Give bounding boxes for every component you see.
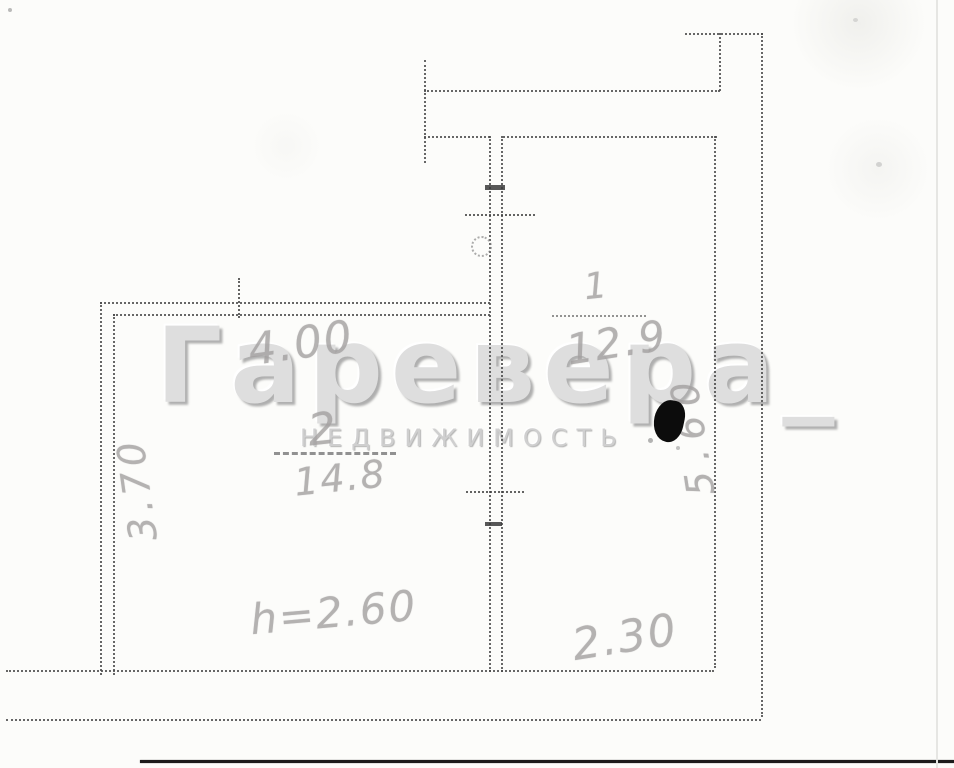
dimension-room2-depth: 3.70: [109, 444, 166, 544]
door-jamb-mark-lower: [485, 522, 502, 526]
wall-outer-right: [761, 33, 763, 717]
tick-partition-lower: [466, 491, 524, 493]
floorplan-scan: Гаревера_ НЕДВИЖИМОСТЬ 4.00 3.70 2 14.8 …: [0, 0, 954, 768]
wall-shaft-left: [719, 33, 721, 91]
page-right-edge: [936, 0, 938, 768]
wall-upper-outer: [424, 90, 720, 92]
dimension-room1-width: 2.30: [569, 604, 682, 671]
scan-speck: [853, 18, 858, 22]
ceiling-height-note: h=2.60: [248, 581, 419, 644]
wall-partition-left: [489, 136, 491, 672]
wall-room2-top-outer: [100, 302, 490, 304]
page-bottom-edge: [140, 760, 954, 763]
tick-partition-upper: [465, 214, 535, 216]
wall-inner-right: [714, 136, 716, 668]
scan-speck: [876, 162, 882, 167]
wall-left-outer: [100, 302, 102, 675]
wall-partition-right: [501, 136, 503, 672]
wall-top-cap: [685, 33, 763, 35]
tick-top-wall: [238, 278, 240, 318]
wall-upper-endcap: [424, 60, 426, 163]
room2-number: 2: [305, 403, 340, 457]
ink-speck: [648, 438, 653, 443]
wall-upper-inner-left: [424, 136, 490, 138]
room2-area: 14.8: [292, 451, 389, 504]
wall-room2-top-inner: [113, 314, 490, 316]
wall-bottom-outer: [6, 719, 761, 721]
scan-speck: [8, 8, 12, 12]
wall-upper-inner-right: [503, 136, 717, 138]
watermark-subtitle-text: НЕДВИЖИМОСТЬ: [300, 424, 626, 452]
ink-speck: [676, 446, 680, 450]
wall-bottom-inner: [6, 670, 714, 672]
door-jamb-mark-upper: [485, 185, 505, 190]
room1-number: 1: [582, 265, 611, 308]
